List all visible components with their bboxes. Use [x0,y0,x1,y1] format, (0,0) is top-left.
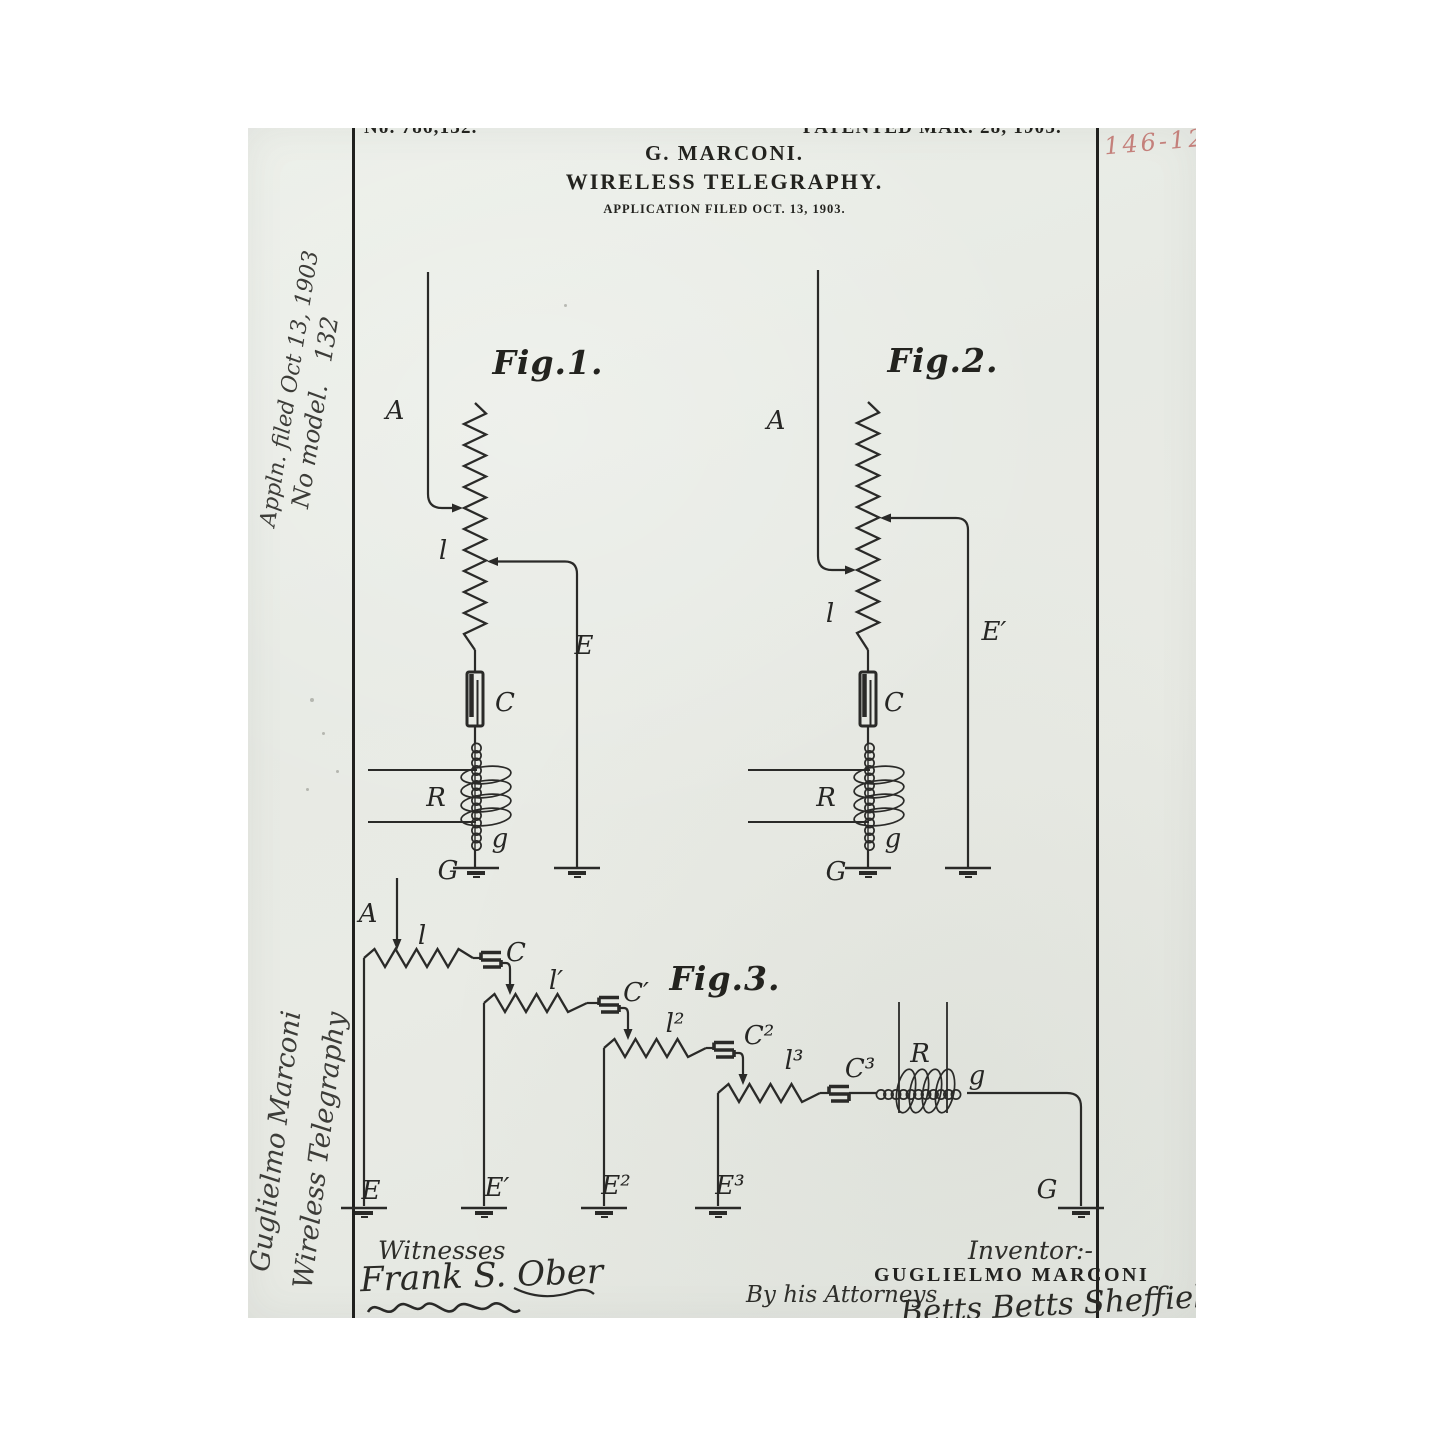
fig1-label-ground: G [438,856,459,886]
patent-page: No. 786,132. PATENTED MAR. 28, 1905. G. … [248,128,1196,1318]
antenna-wire [428,272,453,508]
fig3-label-receiver: R [909,1039,930,1069]
fig2-label-coil: g [885,824,902,854]
inductance-zigzag [604,1039,706,1057]
inventor-label: Inventor:- [968,1236,1093,1265]
fig2-label-antenna: A [765,406,786,436]
figures-drawing: Fig.1. A l E C R g G Fig.2. A l E′ C R g… [248,128,1196,1318]
arrowhead [506,984,515,995]
antenna-wire [818,270,845,570]
fig2-label-inductance: l [826,599,834,629]
fig1-label-coil: g [492,824,509,854]
scanned-patent-screenshot: No. 786,132. PATENTED MAR. 28, 1905. G. … [0,0,1445,1445]
inductance-zigzag [484,994,587,1012]
circuit-linework [341,270,1104,1312]
fig1-label-receiver: R [425,783,446,813]
fig3-label-l1: l′ [549,966,563,996]
fig3-label-l2: l² [666,1009,685,1039]
fig3-label-c1: C′ [623,978,649,1008]
receiver-loop [853,792,905,814]
witness-signature: Frank S. Ober [359,1252,603,1300]
receiver-loop [460,778,512,800]
fig3-label-l3: l³ [785,1046,804,1076]
receiver-loop [853,764,905,786]
fig3-caption: Fig.3. [669,959,781,998]
arrowhead [739,1074,748,1085]
receiver-loop [853,778,905,800]
fig1-label-earth: E [574,631,594,661]
fig2-caption: Fig.2. [887,341,999,380]
fig1-label-antenna: A [384,396,405,426]
fig1-caption: Fig.1. [492,343,604,382]
receiver-loop [460,792,512,814]
fig3-label-c3: C³ [845,1054,875,1084]
arrowhead [393,939,402,950]
arrowhead [624,1029,633,1040]
fig3-label-c: C [506,938,526,968]
inductance-zigzag [718,1084,820,1102]
inductance-zigzag [857,402,879,650]
fig3-label-c2: C² [744,1021,774,1051]
fig3-label-e0: E [361,1176,381,1206]
witness-signature-2-partial [368,1303,520,1312]
fig3-label-ground: G [1037,1175,1058,1205]
fig2-label-condenser: C [884,688,904,718]
fig3-label-antenna: A [357,899,378,929]
fig1-label-condenser: C [495,688,515,718]
inductance-zigzag [364,949,473,967]
fig1-label-inductance: l [439,536,447,566]
figure-labels: Fig.1. A l E C R g G Fig.2. A l E′ C R g… [357,341,1058,1206]
ground-wire [967,1093,1081,1206]
fig3-label-l: l [418,921,426,951]
fig3-label-e2: E² [600,1171,630,1201]
fig3-label-coil: g [969,1061,986,1091]
fig3-label-e3: E³ [714,1171,744,1201]
inductance-zigzag [464,403,486,650]
fig2-label-receiver: R [815,783,836,813]
fig2-label-earth: E′ [981,617,1007,647]
receiver-loop [460,764,512,786]
fig2-label-ground: G [826,857,847,887]
fig3-label-e1: E′ [484,1173,510,1203]
